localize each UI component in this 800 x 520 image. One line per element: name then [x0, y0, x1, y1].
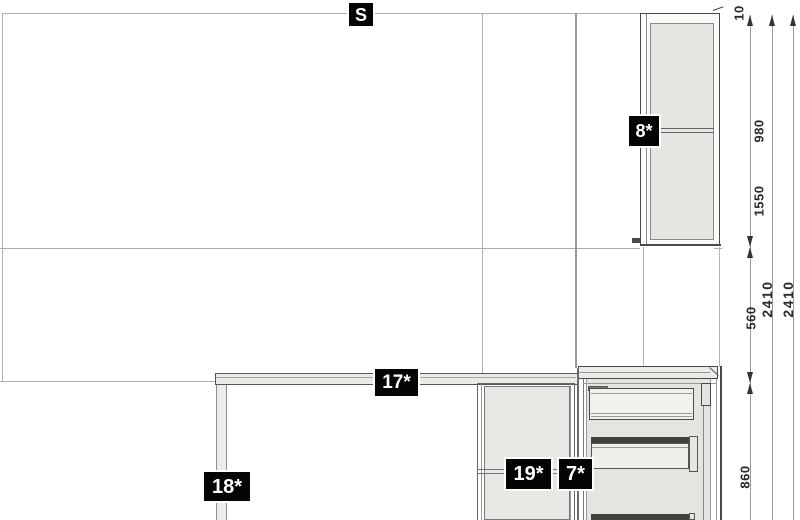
wall-cabinet-8-top-bevel	[713, 6, 724, 11]
worktop-right-edge-line	[579, 372, 710, 373]
drawer-unit-7-left-outer	[577, 368, 579, 520]
drawer-unit-7-right-outer	[720, 366, 722, 520]
drawer-1-rail-bottom2	[591, 416, 692, 417]
drawer-2-side-bracket	[689, 436, 698, 472]
drawer-unit-7-left-inner	[583, 379, 584, 520]
drawer-1-rail-top	[591, 393, 692, 394]
dim-line-chain	[750, 15, 751, 520]
label-wall-cabinet-8[interactable]: 8*	[629, 116, 659, 146]
wall-cabinet-level-line	[0, 248, 640, 249]
dim-line-total-1	[772, 15, 773, 520]
corner-line-b	[575, 13, 577, 368]
label-worktop-17[interactable]: 17*	[375, 369, 418, 396]
drawer-unit-7-left-inner2	[586, 379, 587, 520]
wall-cabinet-8-divider-bottom	[650, 132, 714, 133]
wall-label-badge[interactable]: S	[349, 3, 373, 26]
dim-value-860: 860	[738, 465, 753, 488]
dim-value-total-2: 2410	[780, 280, 796, 317]
dim-arrow-worktop-a	[747, 372, 753, 383]
wall-cabinet-8-divider-top	[650, 128, 714, 129]
dim-arrow-top-total2	[790, 15, 796, 26]
label-table-leg-18[interactable]: 18*	[204, 472, 250, 501]
base-cabinet-19-front[interactable]	[484, 386, 570, 520]
base-cabinet-19-right-outer	[574, 383, 575, 520]
corner-line-a	[482, 13, 483, 373]
dim-value-980: 980	[752, 119, 767, 142]
corner-line-c	[643, 247, 644, 375]
wall-cabinet-8-bottom-edge	[640, 244, 721, 246]
wall-cabinet-8-handle[interactable]	[632, 238, 641, 243]
base-cabinet-19-right-inner	[570, 383, 571, 520]
base-cabinet-19-top-line	[477, 383, 575, 384]
dim-arrow-top-total1	[769, 15, 775, 26]
elevation-viewport: 10 980 1550 560 860 2410 2410 S 8* 17* 1…	[0, 0, 800, 520]
worktop-level-line-left	[0, 381, 216, 382]
dim-arrow-worktop-b	[747, 383, 753, 394]
base-cabinet-19-left-inner	[481, 383, 482, 520]
dim-value-total-1: 2410	[759, 280, 775, 317]
base-cabinet-19-left-outer	[477, 383, 478, 520]
drawer-1-rail-bottom	[591, 413, 692, 414]
corner-line-d	[719, 247, 720, 367]
dim-arrow-top-chain	[747, 15, 753, 26]
dim-value-560: 560	[744, 306, 759, 329]
wall-left-edge	[2, 13, 3, 382]
dim-value-1550: 1550	[752, 186, 767, 217]
label-drawer-unit-7[interactable]: 7*	[559, 459, 592, 489]
dim-arrow-cab-bottom-a	[747, 236, 753, 247]
drawer-3-gap	[591, 514, 689, 520]
wall-cabinet-level-line-right	[714, 248, 722, 249]
dim-line-total-2	[793, 15, 794, 520]
dim-arrow-cab-bottom-b	[747, 247, 753, 258]
drawer-unit-7-top-line	[583, 383, 717, 384]
drawer-1-side-bracket	[701, 383, 711, 406]
drawer-3-side-bracket	[689, 513, 695, 520]
label-base-cabinet-19[interactable]: 19*	[506, 459, 551, 489]
drawer-unit-7-right-panel	[716, 379, 717, 520]
dim-value-10: 10	[732, 5, 747, 20]
drawer-2-rail	[592, 447, 688, 448]
